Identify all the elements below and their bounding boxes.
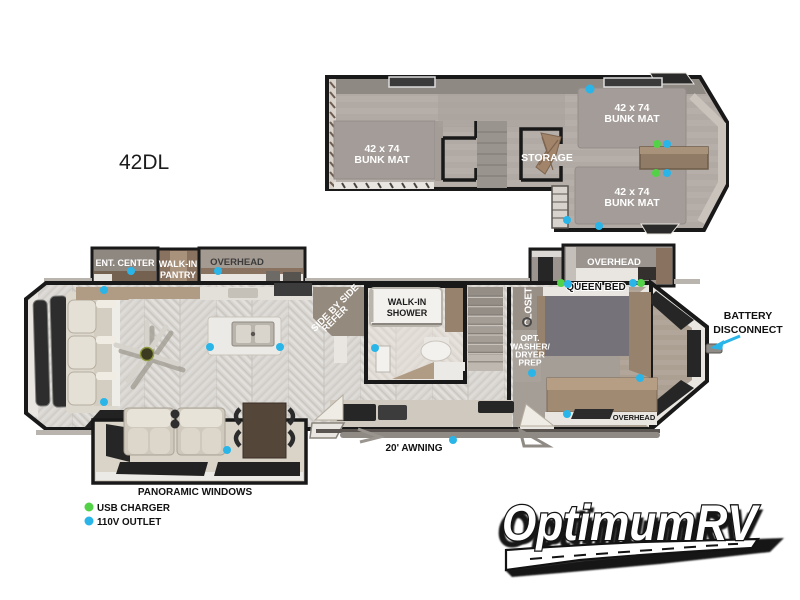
svg-text:PREP: PREP: [518, 358, 541, 368]
svg-text:DISCONNECT: DISCONNECT: [713, 324, 783, 336]
svg-text:BUNK MAT: BUNK MAT: [604, 113, 660, 125]
svg-text:CLOSET: CLOSET: [524, 287, 535, 326]
svg-text:OVERHEAD: OVERHEAD: [613, 413, 656, 422]
svg-text:PANTRY: PANTRY: [160, 270, 196, 280]
svg-text:ENT. CENTER: ENT. CENTER: [95, 258, 155, 268]
svg-text:PANORAMIC WINDOWS: PANORAMIC WINDOWS: [138, 487, 253, 498]
svg-text:STORAGE: STORAGE: [521, 152, 573, 164]
svg-text:20' AWNING: 20' AWNING: [385, 443, 442, 454]
svg-text:WALK-IN: WALK-IN: [159, 259, 198, 269]
svg-text:OVERHEAD: OVERHEAD: [587, 257, 641, 268]
svg-text:QUEEN BED: QUEEN BED: [566, 282, 625, 293]
svg-text:BUNK MAT: BUNK MAT: [604, 197, 660, 209]
svg-text:110V OUTLET: 110V OUTLET: [97, 517, 161, 528]
svg-text:OptimumRV: OptimumRV: [502, 494, 760, 550]
svg-text:OVERHEAD: OVERHEAD: [210, 257, 264, 268]
svg-text:SHOWER: SHOWER: [387, 308, 428, 318]
svg-text:42DL: 42DL: [119, 151, 169, 174]
svg-text:USB CHARGER: USB CHARGER: [97, 503, 170, 514]
svg-text:BUNK MAT: BUNK MAT: [354, 154, 410, 166]
svg-text:WALK-IN: WALK-IN: [388, 297, 427, 307]
svg-text:BATTERY: BATTERY: [724, 310, 772, 322]
